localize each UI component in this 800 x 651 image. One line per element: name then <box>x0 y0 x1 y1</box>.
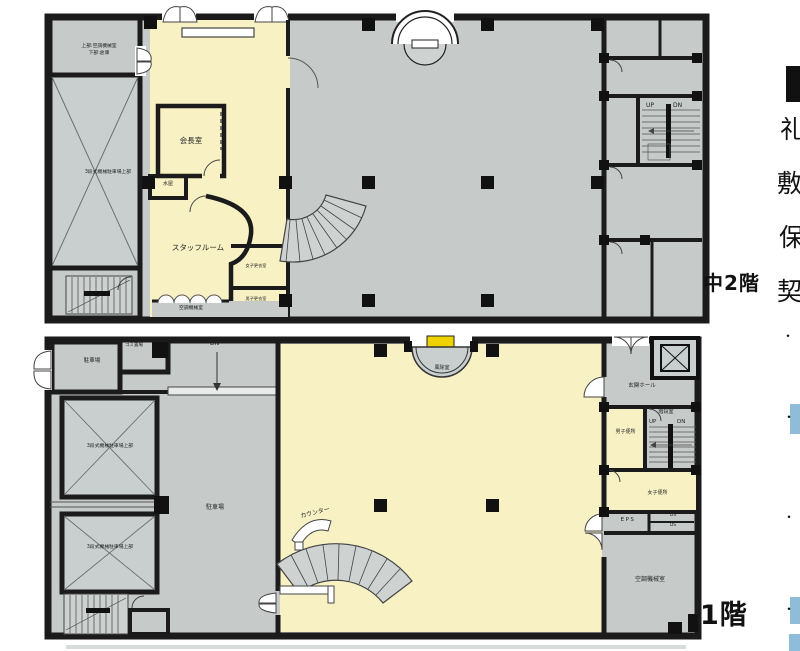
room-label-eps: EPS <box>610 517 646 523</box>
clipped-char-kei: 契 <box>777 278 800 307</box>
bullet-marker-1: ・ <box>782 330 794 344</box>
room-label-hvac-mezz: 空調機械室 <box>166 306 216 312</box>
room-label-ds-lower: DS <box>651 523 695 528</box>
room-label-windbreak: 風除室 <box>424 366 460 372</box>
floor-label-mezzanine: 中2階 <box>703 272 760 295</box>
bullet-marker-4: ・ <box>783 603 795 617</box>
building-floorplan-drawing <box>0 0 800 651</box>
room-label-entrance-hall: 玄関ホール <box>618 383 666 389</box>
mezzanine-plan <box>48 7 706 320</box>
room-label-machine-storage-line2: 下部:倉庫 <box>60 51 138 57</box>
area-label-parking: 駐車場 <box>194 505 236 512</box>
ramp-down-label: DN <box>210 341 219 348</box>
bullet-marker-3: ・ <box>783 511 795 525</box>
room-label-womens-toilet: 女子便所 <box>640 491 675 497</box>
floorplan-page: 上部:空調機械室 下部:倉庫 3段式機械駐車場上部 会長室 水屋 スタッフルーム… <box>0 0 800 651</box>
room-label-machine-storage-line1: 上部:空調機械室 <box>60 44 138 50</box>
room-label-staff-room: スタッフルーム <box>162 244 234 253</box>
room-label-mech-parking-1: 3段式機械駐車場上部 <box>66 444 154 450</box>
floor-label-first-floor: 1階 <box>700 600 748 631</box>
clipped-char-rei: 礼 <box>780 116 800 145</box>
stairs-up-label-1f: UP <box>649 419 656 425</box>
room-label-chairman: 会長室 <box>158 137 224 146</box>
clipped-char-shiki: 敷 <box>777 170 800 199</box>
cropped-bottom-sliver <box>66 645 686 649</box>
room-label-mizuya: 水屋 <box>152 182 184 188</box>
room-label-parking-garage: 駐車場 <box>70 358 114 364</box>
clipped-right-margin <box>786 66 800 651</box>
room-label-mens-toilet: 男子便所 <box>608 430 643 436</box>
room-label-womens-locker: 女子更衣室 <box>233 264 279 269</box>
room-label-mens-locker: 男子更衣室 <box>233 297 279 302</box>
stairs-down-label-1f: DN <box>677 419 685 425</box>
first-floor-plan <box>34 335 701 636</box>
room-label-mech-parking-2: 3段式機械駐車場上部 <box>66 545 154 551</box>
room-label-stair-room: 階段室 <box>650 410 682 416</box>
room-label-mech-parking-mezz: 3段式機械駐車場上部 <box>64 170 152 176</box>
clipped-char-ho: 保 <box>779 224 800 253</box>
bullet-marker-2: ・ <box>783 411 795 425</box>
room-label-ds-upper: DS <box>651 513 695 518</box>
stairs-up-label-mezz: UP <box>646 103 654 110</box>
room-label-hvac-1f: 空調機械室 <box>622 577 678 584</box>
stairs-down-label-mezz: DN <box>673 103 682 110</box>
room-label-garbage: ゴミ置場 <box>118 343 150 348</box>
